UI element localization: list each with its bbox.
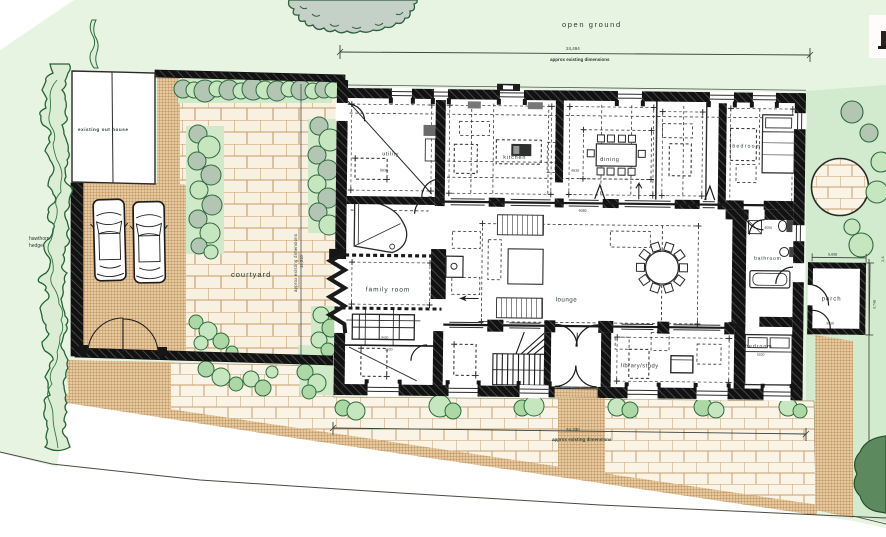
svg-text:bedroom: bedroom <box>745 344 773 350</box>
svg-text:5030: 5030 <box>757 353 765 357</box>
svg-text:6080: 6080 <box>579 209 587 213</box>
svg-text:family room: family room <box>366 286 411 294</box>
svg-text:24,330: 24,330 <box>566 427 580 432</box>
svg-text:bedroom: bedroom <box>732 143 761 149</box>
svg-text:approx existing dimensions: approx existing dimensions <box>293 234 298 292</box>
svg-text:14,810: 14,810 <box>299 255 304 268</box>
svg-text:existing out house: existing out house <box>78 127 128 132</box>
svg-text:5,608: 5,608 <box>828 252 837 256</box>
svg-text:9420: 9420 <box>381 335 388 339</box>
svg-text:9030: 9030 <box>826 321 834 325</box>
svg-text:courtyard: courtyard <box>231 270 271 279</box>
svg-text:library/study: library/study <box>621 363 659 369</box>
svg-text:dining: dining <box>600 157 620 163</box>
svg-text:24,494: 24,494 <box>566 46 580 51</box>
svg-text:5636: 5636 <box>380 168 388 172</box>
svg-text:3,748: 3,748 <box>873 300 877 309</box>
svg-text:lounge: lounge <box>556 296 578 303</box>
svg-text:bathroom: bathroom <box>754 256 782 262</box>
svg-text:4050: 4050 <box>764 226 772 230</box>
svg-text:porch: porch <box>822 296 842 302</box>
svg-text:approx existing dimensions: approx existing dimensions <box>550 57 610 62</box>
svg-text:4630: 4630 <box>571 169 579 173</box>
svg-text:2,4: 2,4 <box>880 256 885 262</box>
svg-text:5630: 5630 <box>385 347 393 351</box>
svg-text:utility: utility <box>382 151 399 157</box>
svg-text:kitchen: kitchen <box>503 155 526 161</box>
svg-text:approx existing dimensions: approx existing dimensions <box>552 437 612 442</box>
svg-text:hedge: hedge <box>29 243 43 249</box>
svg-text:hawthorn: hawthorn <box>29 236 50 242</box>
svg-text:open ground: open ground <box>562 20 622 29</box>
